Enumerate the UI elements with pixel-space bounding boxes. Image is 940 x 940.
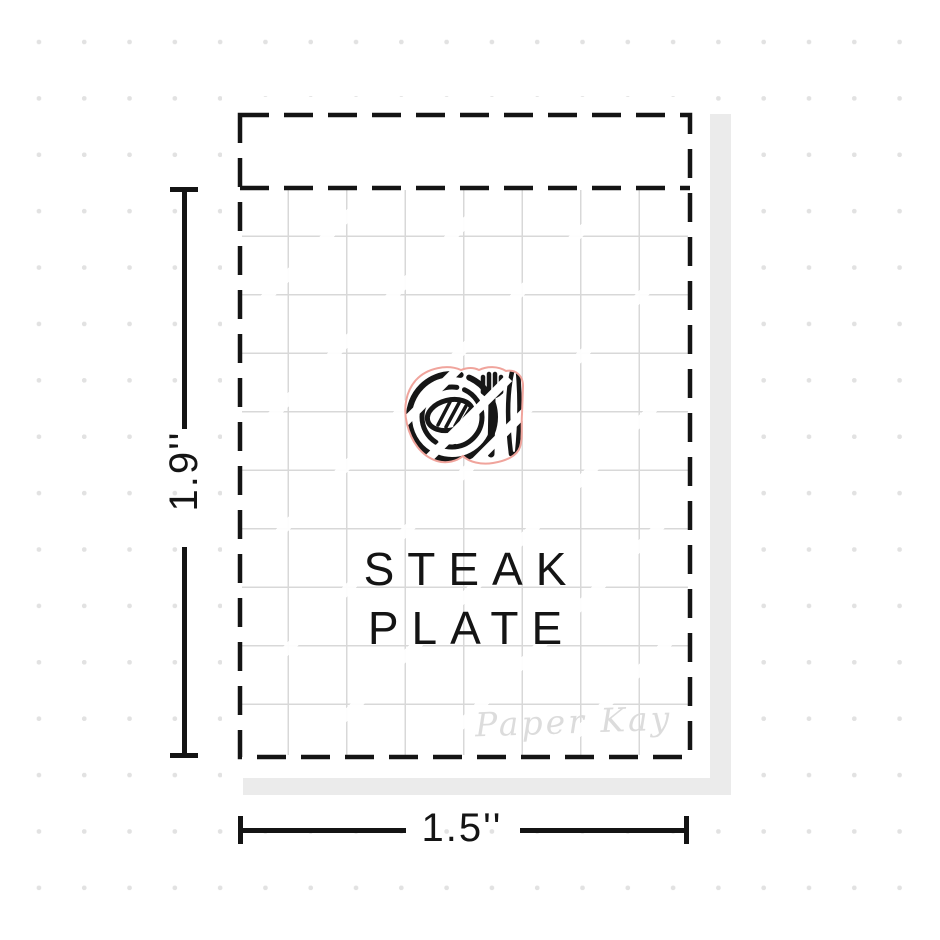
height-dimension-label: 1.9'' [156,406,212,536]
width-dim-segment-left [238,828,406,833]
product-mockup-canvas: STEAK PLATE Paper Kay 1.9'' 1.5'' [0,0,940,940]
height-dim-segment-top [182,187,187,429]
width-dim-segment-right [520,828,688,833]
sticker-sheet: STEAK PLATE Paper Kay [222,97,710,778]
watermark-text: Paper Kay [474,699,673,745]
sticker-title-line1: STEAK [255,540,688,599]
sheet-grid-area: STEAK PLATE Paper Kay [242,190,688,755]
width-dimension-label: 1.5'' [398,804,526,852]
steak-plate-icon [403,364,529,468]
sticker-title: STEAK PLATE [242,540,688,658]
height-dim-cap-bottom [170,753,198,758]
sticker-title-line2: PLATE [255,599,688,658]
height-dim-segment-bottom [182,547,187,757]
width-dim-cap-right [684,816,689,844]
